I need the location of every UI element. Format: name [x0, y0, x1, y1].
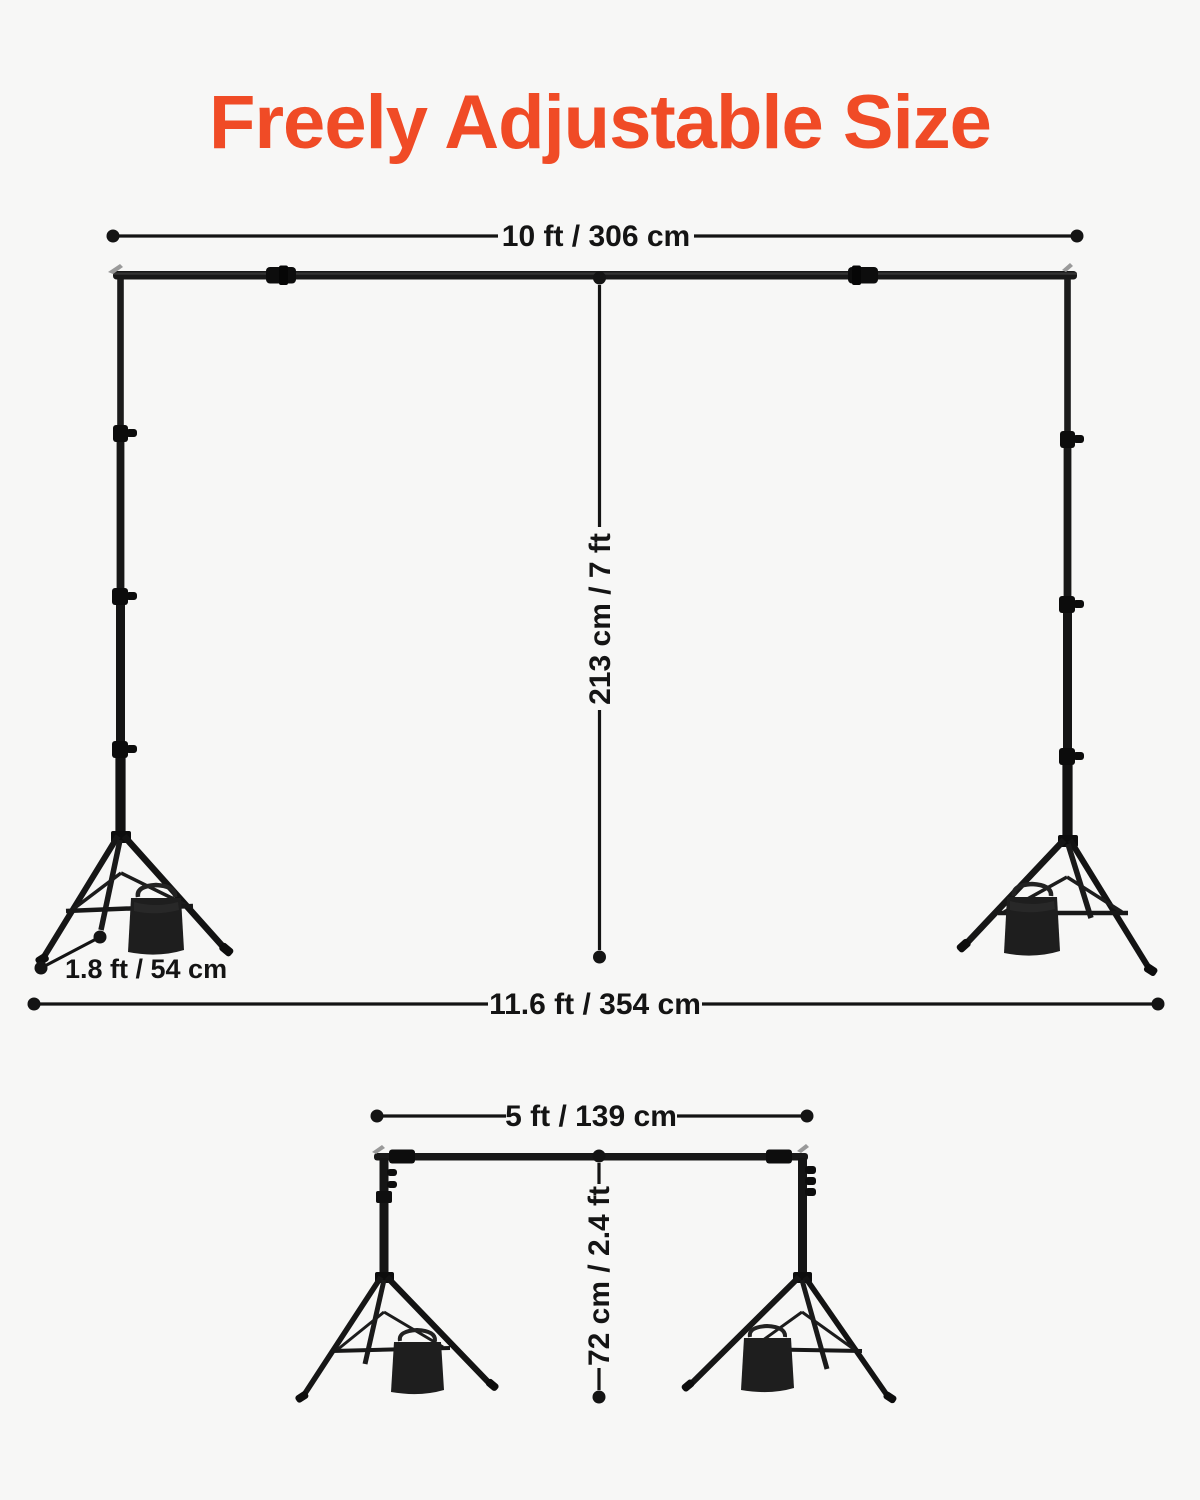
svg-text:11.6 ft / 354 cm: 11.6 ft / 354 cm: [489, 988, 701, 1021]
svg-text:Freely Adjustable Size: Freely Adjustable Size: [209, 80, 991, 165]
svg-text:72 cm / 2.4 ft: 72 cm / 2.4 ft: [583, 1186, 616, 1366]
svg-text:5 ft / 139 cm: 5 ft / 139 cm: [505, 1100, 677, 1133]
svg-text:1.8 ft / 54 cm: 1.8 ft / 54 cm: [65, 954, 227, 984]
svg-text:10 ft / 306 cm: 10 ft / 306 cm: [502, 220, 690, 253]
svg-text:213 cm / 7 ft: 213 cm / 7 ft: [584, 533, 617, 705]
